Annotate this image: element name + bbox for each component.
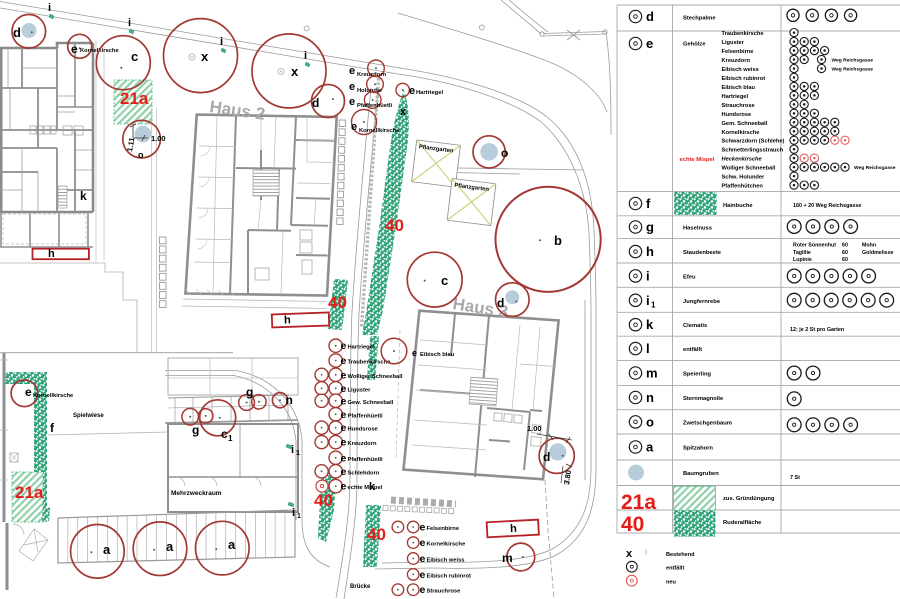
svg-text:21a: 21a <box>120 89 149 108</box>
svg-text:x: x <box>400 106 407 118</box>
svg-text:21a: 21a <box>621 491 656 514</box>
svg-text:e: e <box>25 385 32 399</box>
svg-text:Weg Reichsgasse: Weg Reichsgasse <box>832 66 874 72</box>
svg-text:Jungfernrebe: Jungfernrebe <box>683 299 721 305</box>
svg-text:Hartriegel: Hartriegel <box>348 345 375 351</box>
svg-text:Felsenbirne: Felsenbirne <box>427 526 460 532</box>
svg-text:f: f <box>646 196 651 211</box>
svg-text:Strauchrose: Strauchrose <box>722 103 755 109</box>
svg-text:60: 60 <box>842 250 848 256</box>
svg-text:e: e <box>349 81 355 93</box>
svg-text:Efeu: Efeu <box>683 274 696 280</box>
svg-text:e: e <box>341 369 347 381</box>
svg-text:i: i <box>646 293 650 308</box>
svg-text:c: c <box>131 49 138 64</box>
svg-text:n: n <box>286 393 293 407</box>
svg-text:i: i <box>48 2 51 14</box>
svg-text:Eibisch weiss: Eibisch weiss <box>427 558 465 564</box>
svg-text:40: 40 <box>367 525 386 544</box>
svg-text:Staudenbeete: Staudenbeete <box>683 250 722 256</box>
svg-text:Taglilie: Taglilie <box>793 250 811 256</box>
svg-text:Gew. Schneeball: Gew. Schneeball <box>348 400 394 406</box>
svg-text:Kornelkirsche: Kornelkirsche <box>722 130 760 136</box>
svg-text:Roter Sonnenhut: Roter Sonnenhut <box>793 243 836 249</box>
svg-text:i: i <box>304 50 307 62</box>
svg-text:Stechpalme: Stechpalme <box>683 16 716 22</box>
svg-text:Spitzahorn: Spitzahorn <box>683 446 713 452</box>
svg-text:Kreuzdorn: Kreuzdorn <box>348 441 377 447</box>
svg-text:o: o <box>501 146 508 160</box>
svg-text:Kornellkirsche: Kornellkirsche <box>359 128 400 134</box>
svg-text:1.00: 1.00 <box>151 134 166 143</box>
svg-text:e: e <box>349 65 355 77</box>
svg-text:entfällt: entfällt <box>666 566 684 572</box>
svg-text:Kreuzdorn: Kreuzdorn <box>722 58 751 64</box>
svg-text:160 + 20 Weg Reichsgasse: 160 + 20 Weg Reichsgasse <box>793 203 861 209</box>
svg-text:b: b <box>554 233 562 248</box>
svg-text:Clematis: Clematis <box>683 323 707 329</box>
svg-text:Pfaffenhüetli: Pfaffenhüetli <box>348 413 383 419</box>
svg-text:Lupinie: Lupinie <box>793 257 812 263</box>
svg-text:h: h <box>646 244 654 259</box>
svg-text:1: 1 <box>297 513 301 520</box>
svg-text:Eibisch rubinrot: Eibisch rubinrot <box>722 76 766 82</box>
svg-text:Pfaffenhütchen: Pfaffenhütchen <box>722 184 764 190</box>
svg-text:e: e <box>341 437 347 449</box>
svg-text:Ruderalfläche: Ruderalfläche <box>723 520 762 526</box>
svg-text:zus. Gründüngung: zus. Gründüngung <box>723 496 775 502</box>
svg-text:Hartriegel: Hartriegel <box>722 94 749 100</box>
svg-text:Weg Reichsgasse: Weg Reichsgasse <box>854 165 896 171</box>
svg-text:Goldmelisse: Goldmelisse <box>862 250 894 256</box>
svg-text:Felsenbirne: Felsenbirne <box>722 49 754 55</box>
svg-text:Hainbuche: Hainbuche <box>723 203 753 209</box>
svg-text:Spielwiese: Spielwiese <box>73 413 104 419</box>
svg-text:40: 40 <box>621 513 644 536</box>
svg-text:e: e <box>341 409 347 421</box>
svg-text:c: c <box>221 427 228 441</box>
svg-text:a: a <box>228 537 236 552</box>
svg-text:e: e <box>420 522 426 534</box>
svg-text:Kornellkirsche: Kornellkirsche <box>33 393 74 399</box>
svg-text:Strauchrose: Strauchrose <box>427 589 462 595</box>
svg-text:40: 40 <box>385 216 404 235</box>
svg-text:entfällt: entfällt <box>683 347 702 353</box>
svg-text:Eibisch blau: Eibisch blau <box>722 85 756 91</box>
svg-text:Eibisch blau: Eibisch blau <box>420 352 455 358</box>
svg-text:1.00: 1.00 <box>527 424 542 433</box>
svg-text:i: i <box>292 507 295 519</box>
svg-text:Wolliger Schneeball: Wolliger Schneeball <box>722 166 776 172</box>
svg-text:g: g <box>646 220 654 235</box>
svg-text:e: e <box>341 383 347 395</box>
svg-text:l: l <box>646 341 650 356</box>
svg-text:neu: neu <box>666 580 677 586</box>
svg-text:e: e <box>341 395 347 407</box>
svg-text:i: i <box>646 268 650 283</box>
svg-text:Eibisch weiss: Eibisch weiss <box>722 67 759 73</box>
svg-text:Heckenkirsche: Heckenkirsche <box>722 157 762 163</box>
svg-text:a: a <box>646 440 654 455</box>
svg-text:e: e <box>420 584 426 596</box>
svg-text:h: h <box>48 248 55 260</box>
svg-text:e: e <box>341 466 347 478</box>
svg-text:i: i <box>128 17 131 29</box>
svg-text:Holunder: Holunder <box>357 88 383 94</box>
svg-text:k: k <box>646 317 654 332</box>
svg-text:Liguster: Liguster <box>348 387 372 393</box>
svg-text:g: g <box>192 423 199 437</box>
svg-text:d: d <box>497 296 504 310</box>
svg-text:Weg Reichsgasse: Weg Reichsgasse <box>832 58 874 64</box>
svg-text:Traubenkirsche: Traubenkirsche <box>722 31 764 37</box>
svg-text:12; je 2 St pro Garten: 12; je 2 St pro Garten <box>790 327 844 333</box>
svg-text:Hundsrose: Hundsrose <box>348 427 379 433</box>
svg-text:e: e <box>351 121 357 133</box>
svg-text:x: x <box>201 49 209 64</box>
svg-text:x: x <box>626 548 633 560</box>
svg-text:Gem. Schneeball: Gem. Schneeball <box>722 121 768 127</box>
svg-text:i: i <box>220 36 223 48</box>
svg-text:e: e <box>341 340 347 352</box>
svg-text:h: h <box>284 314 291 326</box>
svg-text:21a: 21a <box>15 483 44 502</box>
svg-text:1: 1 <box>651 300 656 309</box>
svg-text:m: m <box>502 551 513 565</box>
svg-text:h: h <box>510 523 518 535</box>
svg-text:e: e <box>420 537 426 549</box>
svg-text:Hartriegel: Hartriegel <box>416 90 443 96</box>
svg-text:e: e <box>412 348 417 358</box>
svg-text:c: c <box>441 273 448 288</box>
svg-text:m: m <box>646 366 658 381</box>
svg-text:echte Mispel: echte Mispel <box>680 157 715 163</box>
svg-text:60: 60 <box>842 257 848 263</box>
svg-text:Zwetschgenbaum: Zwetschgenbaum <box>683 420 732 426</box>
svg-text:k: k <box>80 189 87 203</box>
svg-text:40: 40 <box>314 491 333 510</box>
svg-text:Gehölze: Gehölze <box>683 42 706 48</box>
svg-text:e: e <box>341 355 347 367</box>
svg-text:o: o <box>138 150 144 160</box>
svg-text:x: x <box>291 64 299 79</box>
svg-text:k: k <box>369 481 376 493</box>
svg-text:Mehrzweckraum: Mehrzweckraum <box>171 490 222 497</box>
svg-text:Wolliger Schneeball: Wolliger Schneeball <box>348 374 403 380</box>
svg-text:Brücke: Brücke <box>350 584 371 590</box>
svg-text:e: e <box>341 422 347 434</box>
svg-text:g: g <box>246 385 253 399</box>
svg-text:e: e <box>71 42 78 56</box>
svg-text:Bestehend: Bestehend <box>666 552 695 558</box>
svg-text:Baumgruben: Baumgruben <box>683 471 719 477</box>
svg-text:Eibisch rubinrot: Eibisch rubinrot <box>427 573 472 579</box>
svg-text:e: e <box>341 452 347 464</box>
svg-text:Hundsrose: Hundsrose <box>722 112 752 118</box>
svg-text:1: 1 <box>228 434 233 443</box>
svg-text:e: e <box>646 36 653 51</box>
svg-text:a: a <box>166 539 174 554</box>
svg-text:Speierling: Speierling <box>683 372 711 378</box>
svg-text:o: o <box>646 414 654 429</box>
svg-text:40: 40 <box>328 293 347 312</box>
svg-text:Schwarzdorn (Schlehe): Schwarzdorn (Schlehe) <box>722 139 785 145</box>
svg-text:e: e <box>349 96 355 108</box>
svg-text:1: 1 <box>296 450 300 457</box>
svg-text:Pfaffenhüetli: Pfaffenhüetli <box>357 103 392 109</box>
svg-text:e: e <box>420 569 426 581</box>
svg-text:Sternmagnolie: Sternmagnolie <box>683 396 724 402</box>
svg-text:Schw. Holunder: Schw. Holunder <box>722 175 766 181</box>
svg-text:Haselnuss: Haselnuss <box>683 226 712 232</box>
svg-text:Mohn: Mohn <box>862 243 876 249</box>
svg-text:echte Mispel: echte Mispel <box>348 485 383 491</box>
svg-text:Schlehdorn: Schlehdorn <box>348 470 380 476</box>
svg-text:Liguster: Liguster <box>722 40 745 46</box>
svg-text:Kornelkirsche: Kornelkirsche <box>427 542 466 548</box>
svg-text:Schmetterlingsstrauch: Schmetterlingsstrauch <box>722 148 784 154</box>
svg-text:60: 60 <box>842 243 848 249</box>
svg-text:d: d <box>13 25 21 40</box>
svg-text:a: a <box>103 542 111 557</box>
svg-text:e: e <box>420 553 426 565</box>
svg-text:e: e <box>409 85 415 97</box>
svg-text:d: d <box>543 450 550 464</box>
svg-text:e: e <box>341 481 347 493</box>
svg-text:Pfaffenhüetli: Pfaffenhüetli <box>348 457 383 463</box>
svg-text:n: n <box>646 390 654 405</box>
svg-text:d: d <box>646 9 654 24</box>
svg-text:d: d <box>312 96 319 110</box>
svg-text:7 St: 7 St <box>790 475 800 481</box>
